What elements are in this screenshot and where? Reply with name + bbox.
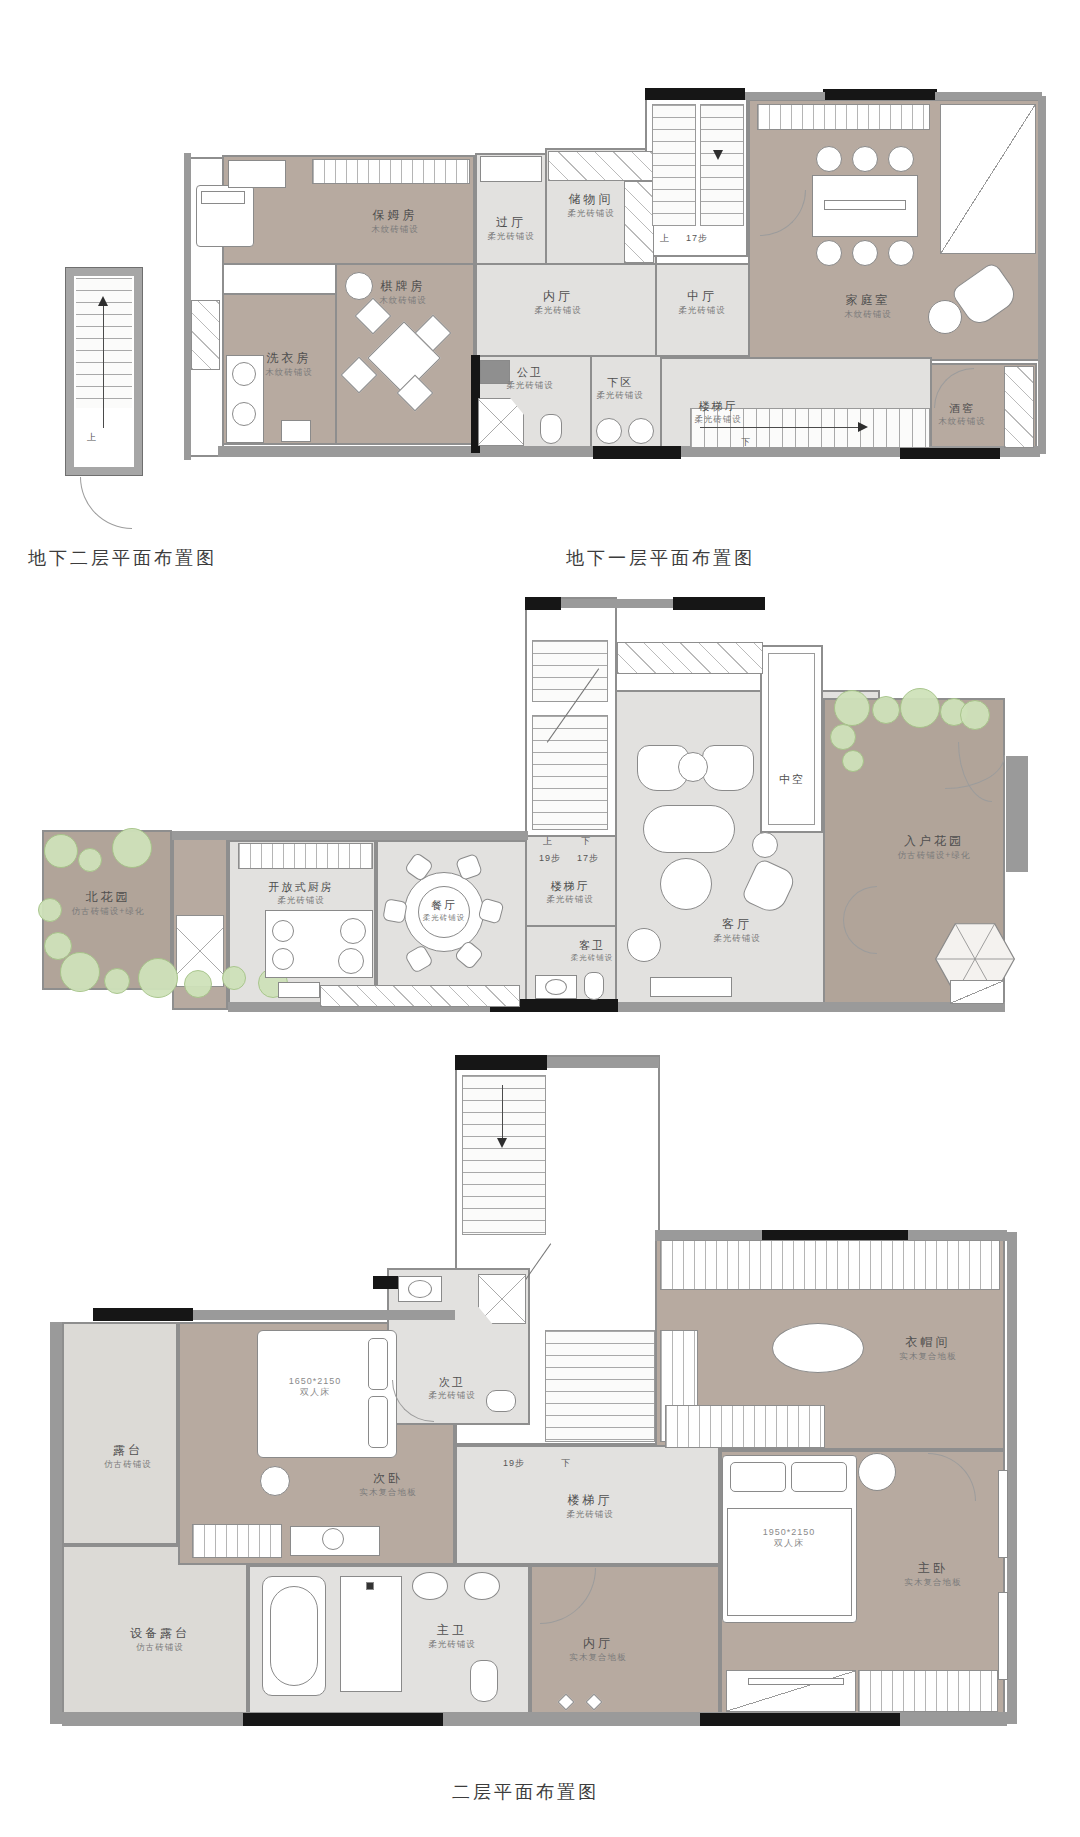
stair-arrow-line bbox=[502, 1085, 503, 1143]
f2-wall bbox=[547, 1057, 659, 1068]
stair-treads bbox=[652, 104, 696, 226]
pouf bbox=[752, 832, 778, 858]
vanity bbox=[480, 360, 510, 384]
tree bbox=[38, 898, 62, 922]
tree bbox=[78, 848, 102, 872]
wine-rack bbox=[1004, 366, 1034, 448]
stair-treads bbox=[545, 1330, 655, 1442]
tree bbox=[960, 700, 990, 730]
sideboard bbox=[320, 985, 520, 1007]
wardrobe-row bbox=[660, 1240, 1000, 1290]
plan-title-basement1: 地下一层平面布置图 bbox=[566, 546, 755, 570]
b2-stair-arrow-line bbox=[103, 300, 104, 428]
b2-stair-arrow-up-icon bbox=[98, 296, 108, 306]
side-table bbox=[678, 752, 708, 782]
washer bbox=[232, 402, 256, 426]
b1-wall bbox=[823, 89, 937, 100]
window bbox=[998, 1592, 1008, 1680]
wardrobe bbox=[192, 1524, 282, 1558]
ceiling-light bbox=[345, 272, 373, 300]
bathtub-inner bbox=[270, 1586, 318, 1686]
basin bbox=[545, 979, 567, 995]
tree bbox=[44, 834, 78, 868]
sink bbox=[272, 920, 294, 942]
closet bbox=[624, 181, 654, 263]
shower bbox=[340, 1576, 402, 1692]
f1-wall bbox=[172, 831, 528, 840]
chair bbox=[816, 240, 842, 266]
f2-equip-terrace bbox=[62, 1545, 248, 1722]
stool bbox=[628, 418, 654, 444]
b1-room-innerhall bbox=[475, 263, 657, 357]
f2-wall bbox=[243, 1713, 443, 1726]
chair bbox=[322, 1528, 344, 1550]
wardrobe-row bbox=[858, 1670, 998, 1712]
stair-treads bbox=[532, 715, 608, 830]
f2-wall bbox=[455, 1055, 547, 1070]
tree bbox=[112, 828, 152, 868]
f2-wall bbox=[93, 1308, 193, 1321]
b1-wall bbox=[745, 92, 825, 100]
toilet bbox=[470, 1660, 498, 1702]
b1-wall bbox=[935, 92, 1042, 100]
chair bbox=[852, 146, 878, 172]
basin bbox=[412, 1572, 448, 1600]
stair-treads bbox=[462, 1075, 546, 1235]
toilet bbox=[540, 414, 562, 444]
window-strip bbox=[617, 642, 763, 674]
table-runner bbox=[824, 200, 906, 210]
pouf bbox=[928, 300, 962, 334]
tv-cabinet bbox=[726, 1670, 856, 1712]
pillow bbox=[730, 1462, 786, 1492]
wardrobe bbox=[312, 159, 470, 184]
stair-treads bbox=[700, 104, 744, 226]
tv bbox=[748, 1678, 844, 1685]
toilet bbox=[584, 972, 604, 1000]
blanket bbox=[727, 1508, 852, 1616]
tree bbox=[872, 696, 900, 724]
tree bbox=[60, 952, 100, 992]
b1-wall bbox=[645, 88, 745, 100]
f2-terrace bbox=[62, 1322, 178, 1545]
window bbox=[998, 1470, 1008, 1558]
pillow bbox=[368, 1338, 388, 1390]
f1-wall bbox=[525, 597, 561, 610]
b1-wall bbox=[593, 446, 681, 459]
stair-treads bbox=[690, 408, 930, 448]
sink bbox=[272, 948, 294, 970]
window-panel bbox=[940, 104, 1036, 254]
tv-console bbox=[650, 977, 732, 997]
floorplan-sheet: 上 地下二层平面布置图 bbox=[0, 0, 1080, 1837]
tree bbox=[900, 688, 940, 728]
chair bbox=[382, 898, 407, 923]
tree bbox=[104, 968, 130, 994]
f1-stairhall bbox=[525, 835, 617, 927]
ac-unit bbox=[950, 980, 1004, 1004]
armchair bbox=[702, 745, 754, 791]
chair bbox=[888, 146, 914, 172]
f2-wall bbox=[50, 1322, 62, 1724]
ottoman bbox=[772, 1323, 864, 1373]
wardrobe-row bbox=[665, 1405, 825, 1448]
basin bbox=[464, 1572, 500, 1600]
stool bbox=[338, 948, 364, 974]
tree bbox=[222, 966, 246, 990]
pillow bbox=[791, 1462, 847, 1492]
stair-ar row-down-icon bbox=[497, 1138, 507, 1148]
tree bbox=[138, 958, 178, 998]
f2-stairhall bbox=[455, 1445, 720, 1565]
sink bbox=[281, 420, 311, 442]
closet bbox=[757, 104, 930, 130]
tree bbox=[834, 690, 870, 726]
b1-wall bbox=[184, 153, 191, 460]
f1-void-frame bbox=[768, 653, 815, 825]
b1-wall bbox=[1038, 96, 1046, 454]
toilet bbox=[486, 1390, 516, 1412]
b1-wall bbox=[900, 448, 1000, 459]
washer bbox=[232, 362, 256, 386]
f1-wall bbox=[673, 597, 765, 610]
b2-door-arc bbox=[80, 477, 132, 529]
rug bbox=[660, 858, 712, 910]
f2-wall bbox=[1007, 1232, 1017, 1724]
f2-wall bbox=[700, 1713, 900, 1726]
tree bbox=[830, 724, 856, 750]
rug bbox=[260, 1466, 290, 1496]
chair bbox=[888, 240, 914, 266]
nightstand bbox=[858, 1453, 896, 1491]
stool bbox=[596, 418, 622, 444]
desk bbox=[228, 160, 286, 188]
stair-arrow-line bbox=[700, 427, 860, 428]
cooktop bbox=[278, 982, 320, 998]
chair bbox=[816, 146, 842, 172]
basin bbox=[408, 1280, 432, 1298]
f1-wall bbox=[1006, 756, 1028, 872]
b1-annex-closet bbox=[191, 300, 220, 370]
counter bbox=[238, 843, 373, 869]
rug bbox=[627, 928, 661, 962]
dining-table-inner bbox=[418, 886, 470, 938]
fresh-air-unit bbox=[480, 156, 542, 182]
plan-title-basement2: 地下二层平面布置图 bbox=[28, 546, 217, 570]
closet bbox=[548, 151, 654, 181]
stair-arrow-right-icon bbox=[858, 422, 868, 432]
f2-wall bbox=[193, 1310, 455, 1320]
shower-head bbox=[366, 1582, 374, 1590]
f1-wall bbox=[561, 599, 673, 608]
stair-arrow-down-icon bbox=[713, 150, 723, 160]
tree bbox=[842, 750, 864, 772]
coffee-table bbox=[643, 805, 735, 853]
tree bbox=[184, 970, 212, 998]
pillow bbox=[201, 191, 245, 204]
chair bbox=[852, 240, 878, 266]
stool bbox=[340, 918, 366, 944]
plan-title-floor2: 二层平面布置图 bbox=[452, 1780, 599, 1804]
pillow bbox=[368, 1396, 388, 1448]
